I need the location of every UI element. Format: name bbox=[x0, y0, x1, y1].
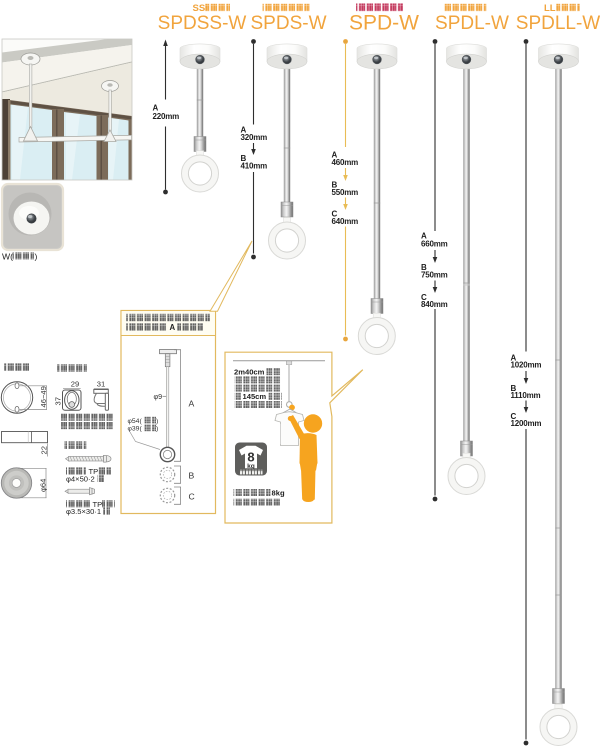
svg-text:8kg: 8kg bbox=[272, 488, 285, 497]
svg-text:): ) bbox=[156, 426, 158, 433]
svg-text:kg: kg bbox=[247, 463, 255, 470]
svg-text:): ) bbox=[156, 418, 158, 425]
svg-text:1110mm: 1110mm bbox=[511, 391, 541, 400]
svg-text:SPD-W: SPD-W bbox=[349, 12, 419, 35]
svg-text:1020mm: 1020mm bbox=[511, 361, 542, 370]
svg-text:31: 31 bbox=[97, 380, 105, 389]
svg-text:660mm: 660mm bbox=[421, 240, 448, 249]
svg-text:SPDSS-W: SPDSS-W bbox=[158, 13, 247, 34]
svg-text:410mm: 410mm bbox=[241, 162, 268, 171]
svg-text:1200mm: 1200mm bbox=[511, 419, 542, 428]
svg-text:φ4×50·2: φ4×50·2 bbox=[66, 474, 95, 483]
svg-text:φ9: φ9 bbox=[154, 392, 163, 401]
svg-text:B: B bbox=[189, 471, 195, 481]
svg-text:φ39(: φ39( bbox=[128, 426, 143, 433]
svg-text:640mm: 640mm bbox=[332, 217, 359, 226]
svg-text:φ3.5×30·1: φ3.5×30·1 bbox=[66, 507, 101, 516]
svg-text:φ64: φ64 bbox=[39, 479, 48, 492]
svg-text:A: A bbox=[170, 323, 176, 332]
svg-text:320mm: 320mm bbox=[241, 133, 268, 142]
svg-text:SPDS-W: SPDS-W bbox=[251, 13, 327, 34]
svg-text:750mm: 750mm bbox=[421, 271, 448, 280]
svg-text:22: 22 bbox=[40, 446, 49, 454]
svg-text:29: 29 bbox=[71, 380, 79, 389]
svg-text:840mm: 840mm bbox=[421, 300, 448, 309]
svg-text:460mm: 460mm bbox=[332, 158, 359, 167]
svg-text:SPDL-W: SPDL-W bbox=[435, 13, 509, 34]
svg-text:SPDLL-W: SPDLL-W bbox=[516, 13, 600, 34]
svg-text:φ54(: φ54( bbox=[128, 418, 143, 425]
svg-text:37: 37 bbox=[54, 397, 63, 405]
svg-text:): ) bbox=[35, 252, 38, 262]
svg-text:2m40cm: 2m40cm bbox=[234, 368, 265, 377]
svg-text:46~49: 46~49 bbox=[39, 386, 48, 407]
svg-text:145cm: 145cm bbox=[243, 392, 267, 401]
svg-text:C: C bbox=[189, 492, 195, 502]
svg-text:220mm: 220mm bbox=[153, 112, 180, 121]
svg-text:550mm: 550mm bbox=[332, 188, 359, 197]
svg-text:A: A bbox=[189, 399, 195, 409]
svg-text:W(: W( bbox=[2, 252, 13, 262]
